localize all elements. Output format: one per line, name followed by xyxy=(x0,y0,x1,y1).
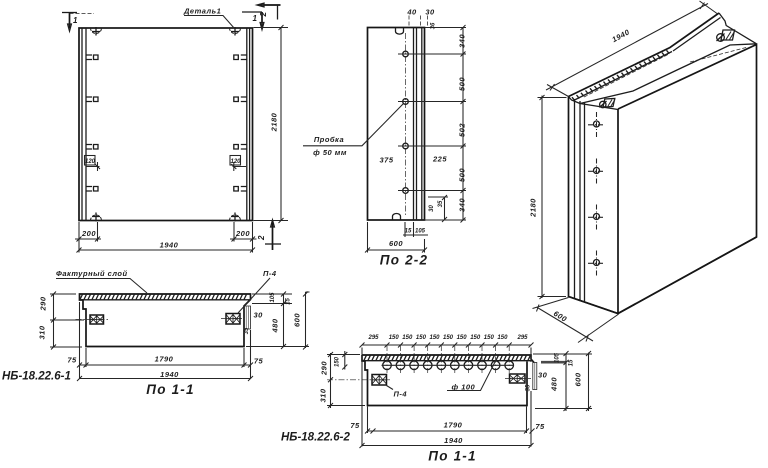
svg-text:По 2-2: По 2-2 xyxy=(380,253,428,268)
svg-text:30: 30 xyxy=(425,8,435,17)
svg-text:200: 200 xyxy=(81,229,96,238)
svg-text:1940: 1940 xyxy=(160,241,179,250)
svg-text:75: 75 xyxy=(350,421,360,430)
svg-text:30: 30 xyxy=(538,371,548,380)
svg-text:15: 15 xyxy=(286,298,292,305)
svg-text:340: 340 xyxy=(458,198,467,212)
svg-text:15: 15 xyxy=(569,359,575,366)
svg-text:295: 295 xyxy=(516,335,528,341)
svg-text:40: 40 xyxy=(406,8,417,17)
svg-text:150: 150 xyxy=(402,335,413,341)
svg-text:150: 150 xyxy=(429,335,440,341)
svg-text:105: 105 xyxy=(555,352,561,363)
svg-text:35: 35 xyxy=(244,327,250,334)
svg-text:340: 340 xyxy=(458,34,467,48)
svg-text:150: 150 xyxy=(470,335,481,341)
svg-text:Деталь1: Деталь1 xyxy=(183,7,221,16)
svg-text:150: 150 xyxy=(497,335,508,341)
svg-text:36: 36 xyxy=(431,22,437,29)
svg-text:500: 500 xyxy=(458,168,467,182)
svg-text:Пробка: Пробка xyxy=(314,135,344,144)
svg-text:НБ-18.22.6-1: НБ-18.22.6-1 xyxy=(2,371,71,383)
svg-text:310: 310 xyxy=(319,388,328,402)
svg-text:105: 105 xyxy=(415,229,426,235)
svg-text:295: 295 xyxy=(367,335,379,341)
svg-text:75: 75 xyxy=(254,357,264,366)
svg-text:П-4: П-4 xyxy=(394,390,408,399)
svg-text:200: 200 xyxy=(235,229,250,238)
svg-text:105: 105 xyxy=(270,292,276,303)
svg-text:75: 75 xyxy=(535,422,545,431)
svg-text:600: 600 xyxy=(293,313,302,327)
svg-text:290: 290 xyxy=(320,361,329,376)
svg-text:150: 150 xyxy=(416,335,427,341)
svg-text:2180: 2180 xyxy=(270,112,279,132)
svg-text:35: 35 xyxy=(438,200,444,207)
svg-text:150: 150 xyxy=(335,356,341,367)
svg-text:2: 2 xyxy=(257,235,266,241)
svg-text:500: 500 xyxy=(458,77,467,91)
svg-text:600: 600 xyxy=(574,372,583,386)
svg-text:480: 480 xyxy=(271,318,280,333)
svg-text:НБ-18.22.6-2: НБ-18.22.6-2 xyxy=(281,432,350,444)
svg-text:ф 50 мм: ф 50 мм xyxy=(313,148,347,157)
svg-text:П-4: П-4 xyxy=(263,269,277,278)
svg-text:120: 120 xyxy=(85,159,96,165)
svg-text:Фактурный слой: Фактурный слой xyxy=(56,269,128,278)
svg-text:310: 310 xyxy=(38,325,47,339)
svg-text:2: 2 xyxy=(259,12,268,18)
svg-text:150: 150 xyxy=(484,335,495,341)
svg-text:35: 35 xyxy=(526,384,532,391)
svg-text:2180: 2180 xyxy=(529,198,538,218)
svg-text:290: 290 xyxy=(39,296,48,311)
svg-text:480: 480 xyxy=(550,377,559,392)
svg-text:225: 225 xyxy=(432,155,447,164)
svg-text:150: 150 xyxy=(457,335,468,341)
svg-text:75: 75 xyxy=(67,356,77,365)
svg-text:По 1-1: По 1-1 xyxy=(428,449,476,464)
svg-text:502: 502 xyxy=(458,123,467,137)
svg-text:600: 600 xyxy=(389,239,403,248)
svg-text:150: 150 xyxy=(443,335,454,341)
svg-text:30: 30 xyxy=(254,311,264,320)
svg-text:375: 375 xyxy=(379,156,393,165)
svg-text:1940: 1940 xyxy=(160,370,179,379)
svg-text:1790: 1790 xyxy=(155,355,174,364)
svg-text:1: 1 xyxy=(73,16,78,25)
svg-text:150: 150 xyxy=(389,335,400,341)
svg-text:30: 30 xyxy=(429,205,435,212)
svg-text:15: 15 xyxy=(405,229,412,235)
svg-text:По 1-1: По 1-1 xyxy=(146,382,194,397)
svg-text:1: 1 xyxy=(253,14,258,23)
svg-text:1940: 1940 xyxy=(444,436,463,445)
svg-text:1790: 1790 xyxy=(444,421,463,430)
